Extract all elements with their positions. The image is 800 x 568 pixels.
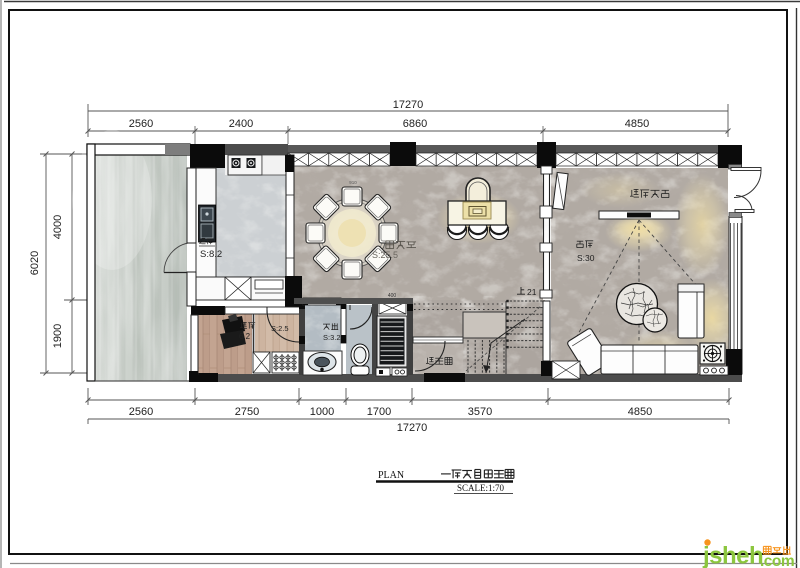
svg-text:6.2: 6.2 (239, 332, 251, 341)
svg-text:S:2.5: S:2.5 (271, 324, 289, 333)
svg-text:6020: 6020 (29, 251, 41, 275)
svg-text:2560: 2560 (129, 406, 153, 418)
svg-text:4000: 4000 (52, 215, 64, 239)
svg-text:1000: 1000 (310, 406, 334, 418)
svg-text:2400: 2400 (229, 118, 253, 130)
svg-text:4850: 4850 (625, 118, 649, 130)
svg-text:6860: 6860 (403, 118, 427, 130)
svg-text:jsheh: jsheh (702, 543, 763, 568)
svg-text:17270: 17270 (393, 99, 424, 111)
svg-text:S:30: S:30 (577, 253, 595, 263)
svg-text:S:3.2: S:3.2 (323, 333, 341, 342)
svg-text:1900: 1900 (52, 324, 64, 348)
svg-text:910: 910 (349, 180, 357, 185)
svg-text:.com: .com (760, 553, 794, 568)
svg-text:1700: 1700 (367, 406, 391, 418)
svg-text:3570: 3570 (468, 406, 492, 418)
svg-text:PLAN: PLAN (378, 470, 404, 481)
svg-text:S:25.5: S:25.5 (372, 250, 398, 260)
svg-text:21: 21 (527, 287, 537, 297)
svg-text:S:8.2: S:8.2 (200, 249, 222, 260)
svg-text:400: 400 (388, 293, 397, 299)
svg-text:4850: 4850 (628, 406, 652, 418)
svg-text:17270: 17270 (397, 422, 428, 434)
svg-text:2560: 2560 (129, 118, 153, 130)
svg-text:SCALE:1:70: SCALE:1:70 (457, 483, 505, 493)
svg-text:2750: 2750 (235, 406, 259, 418)
